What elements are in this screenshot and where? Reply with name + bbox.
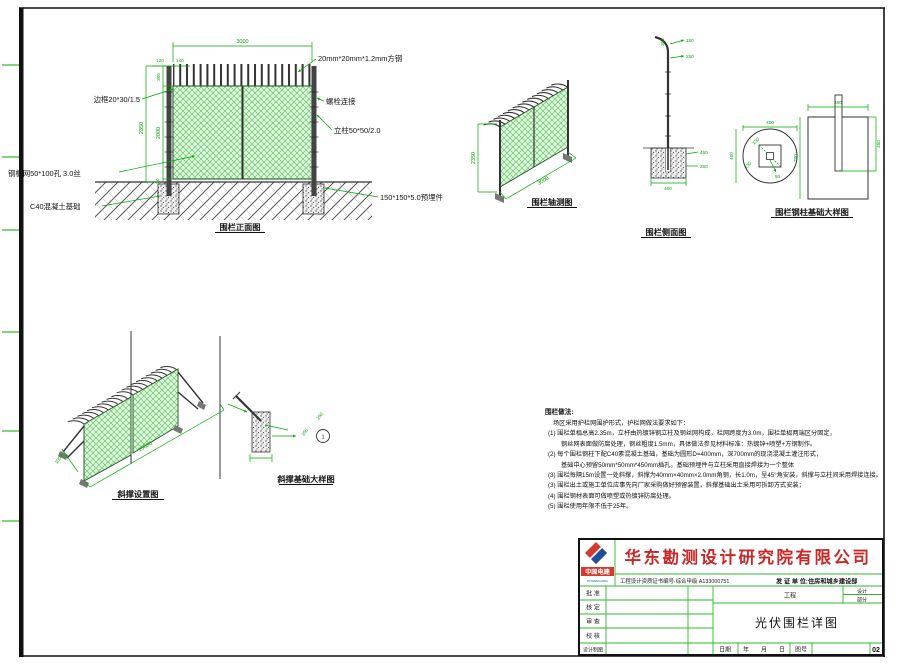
section-post: [835, 95, 842, 171]
label-square-steel: 20mm*20mm*1.2mm方钢: [318, 54, 402, 63]
side-dim-r1: 150: [686, 38, 694, 43]
dim-front-width: 3000: [236, 39, 248, 45]
notes-line: 基础中心预留50mm*50mm*450mm插孔。基础预埋件与立柱采用直接焊接为一…: [545, 461, 890, 471]
logo-text: 中国电建: [585, 568, 611, 576]
label-foundation: C40混凝土基础: [30, 202, 81, 211]
notes-line: (4) 围栏钢材表面可做喷塑或热镀锌防腐处理。: [545, 492, 890, 502]
notes-heading: 围栏做法:: [545, 406, 890, 416]
sheet-title: 光伏围栏详图: [755, 615, 839, 630]
side-dim-e1: 450: [700, 150, 708, 155]
notes-line: (3) 围栏出土或施工单位应事先向厂家采购做好预留装置，斜撑基础出土采用可拆卸方…: [545, 481, 890, 491]
frame-ticks: [2, 65, 19, 521]
notes-line: 场区采用护栏网围护形式，护栏网做法要求如下：: [545, 419, 890, 429]
side-dim-top: 300: [660, 38, 665, 46]
dim-120: 120: [156, 58, 164, 63]
brace-layout-view: 15000 1000 斜撑设置图: [54, 331, 224, 500]
plan-dim-hole: 50: [775, 174, 781, 179]
axon-view: 2350 3000 围栏轴测图: [471, 79, 577, 208]
ground-hatch: [95, 182, 372, 220]
brace-view-caption: 斜撑设置图: [117, 489, 159, 499]
row-label-check: 校 核: [586, 632, 600, 640]
cert-no: 工程设计资质证书编号·综合甲级 A133000751: [620, 577, 729, 585]
sheet-number: 02: [872, 647, 880, 654]
post-left: [167, 66, 172, 196]
mesh-panel-left: [173, 86, 242, 179]
side-dim-w: 400: [664, 186, 672, 191]
label-post: 立柱50*50/2.0: [334, 126, 380, 135]
brace-fnd-dim-a: 250: [301, 427, 310, 437]
dim-50: 50: [155, 178, 160, 184]
label-mesh: 钢板网50*100孔 3.0丝: [8, 169, 81, 178]
dim-mesh-height: 2000: [156, 127, 162, 139]
title-block: 中国电建 POWERCHINA 华东勘测设计研究院有限公司 工程设计资质证书编号…: [578, 538, 884, 656]
figno-label: 图号: [795, 647, 807, 654]
project-label: 工程: [784, 592, 796, 600]
brace-foundation-caption: 斜撑基础大样图: [276, 474, 334, 484]
section-dim-embed: 450: [876, 140, 881, 148]
notes-line: 钢丝网表面做防腐处理，钢丝粗度1.5mm，具体做法参见材料标准：热镀锌+喷塑+方…: [545, 440, 890, 450]
part-label: 部分: [857, 597, 867, 604]
cert-issuer: 发 证 单 位:住房和城乡建设部: [775, 578, 858, 586]
front-view: 3000 120 140 2350 300 2000 50 边框20*30/1.…: [8, 39, 443, 233]
row-label-review: 审 查: [586, 618, 600, 626]
row-label-verify: 核 定: [586, 604, 600, 612]
label-frame: 边框20*30/1.5: [94, 95, 140, 104]
row-label-drafting: 设计制图: [583, 647, 603, 654]
section-dim-d: 700: [793, 154, 798, 162]
label-bolt: 螺栓连接: [326, 97, 356, 106]
notes-line: (2) 每个围栏钢柱下配C40素混凝土基础，基础为圆形D=400mm，深700m…: [545, 450, 890, 460]
drawing-sheet: 3000 120 140 2350 300 2000 50 边框20*30/1.…: [0, 0, 900, 665]
axon-dim-h: 2350: [471, 152, 477, 164]
section-dim-w: 400: [834, 100, 842, 105]
column-foundation-caption: 围栏钢柱基础大样图: [775, 207, 849, 217]
plan-dim-h: 400: [729, 152, 734, 160]
notes-line: (1) 围栏单榀总高2.35m，立杆由热镀锌钢立柱及钢丝网构成，栏网跨度为3.0…: [545, 429, 890, 439]
brace-fnd-dim-b: 250: [316, 411, 325, 421]
brace-bar: [236, 396, 261, 421]
brace-foundation-block: [252, 412, 270, 452]
side-dim-e2: 250: [700, 164, 708, 169]
dim-total-height: 2350: [139, 122, 145, 134]
front-view-caption: 围栏正面图: [220, 222, 261, 232]
notes-line: (5) 围栏使用年限不低于25年。: [545, 502, 890, 512]
mesh-panel-right: [243, 86, 312, 179]
detail-bubble-no: 1: [321, 435, 324, 441]
brace-foundation-detail: 250 250 1 斜撑基础大样图: [228, 392, 335, 485]
post-right: [312, 66, 317, 196]
side-view: 300 150 250 450 250 400 围栏侧面图: [641, 37, 708, 238]
date-ymd: 年 月 日: [743, 646, 785, 654]
spike-band: [173, 64, 312, 86]
axon-dim-w: 3000: [537, 175, 551, 186]
date-label: 日期: [719, 646, 731, 654]
notes-block: 围栏做法: 场区采用护栏网围护形式，护栏网做法要求如下： (1) 围栏单榀总高2…: [545, 406, 890, 513]
design-label: 设计: [857, 588, 867, 595]
column-foundation-detail: 400 400 150 150 50 400 700 450 围栏钢柱基础大样图: [729, 95, 881, 218]
logo-subtext: POWERCHINA: [587, 579, 608, 583]
dim-140: 140: [176, 58, 184, 63]
axon-caption: 围栏轴测图: [532, 197, 573, 207]
row-label-approve: 批 准: [586, 590, 600, 598]
plan-dim-w: 400: [766, 120, 774, 125]
company-name: 华东勘测设计研究院有限公司: [625, 547, 872, 567]
side-view-caption: 围栏侧面图: [646, 227, 687, 237]
label-embed: 150*150*5.0预埋件: [380, 193, 443, 202]
side-dim-r2: 250: [686, 54, 694, 59]
dim-300: 300: [156, 73, 161, 81]
notes-line: (3) 围栏每隔15m设置一处斜撑，斜撑为40mm×40mm×2.0mm角钢，长…: [545, 471, 890, 481]
post-hole: [767, 153, 774, 160]
frame-left-bar: [19, 8, 24, 657]
